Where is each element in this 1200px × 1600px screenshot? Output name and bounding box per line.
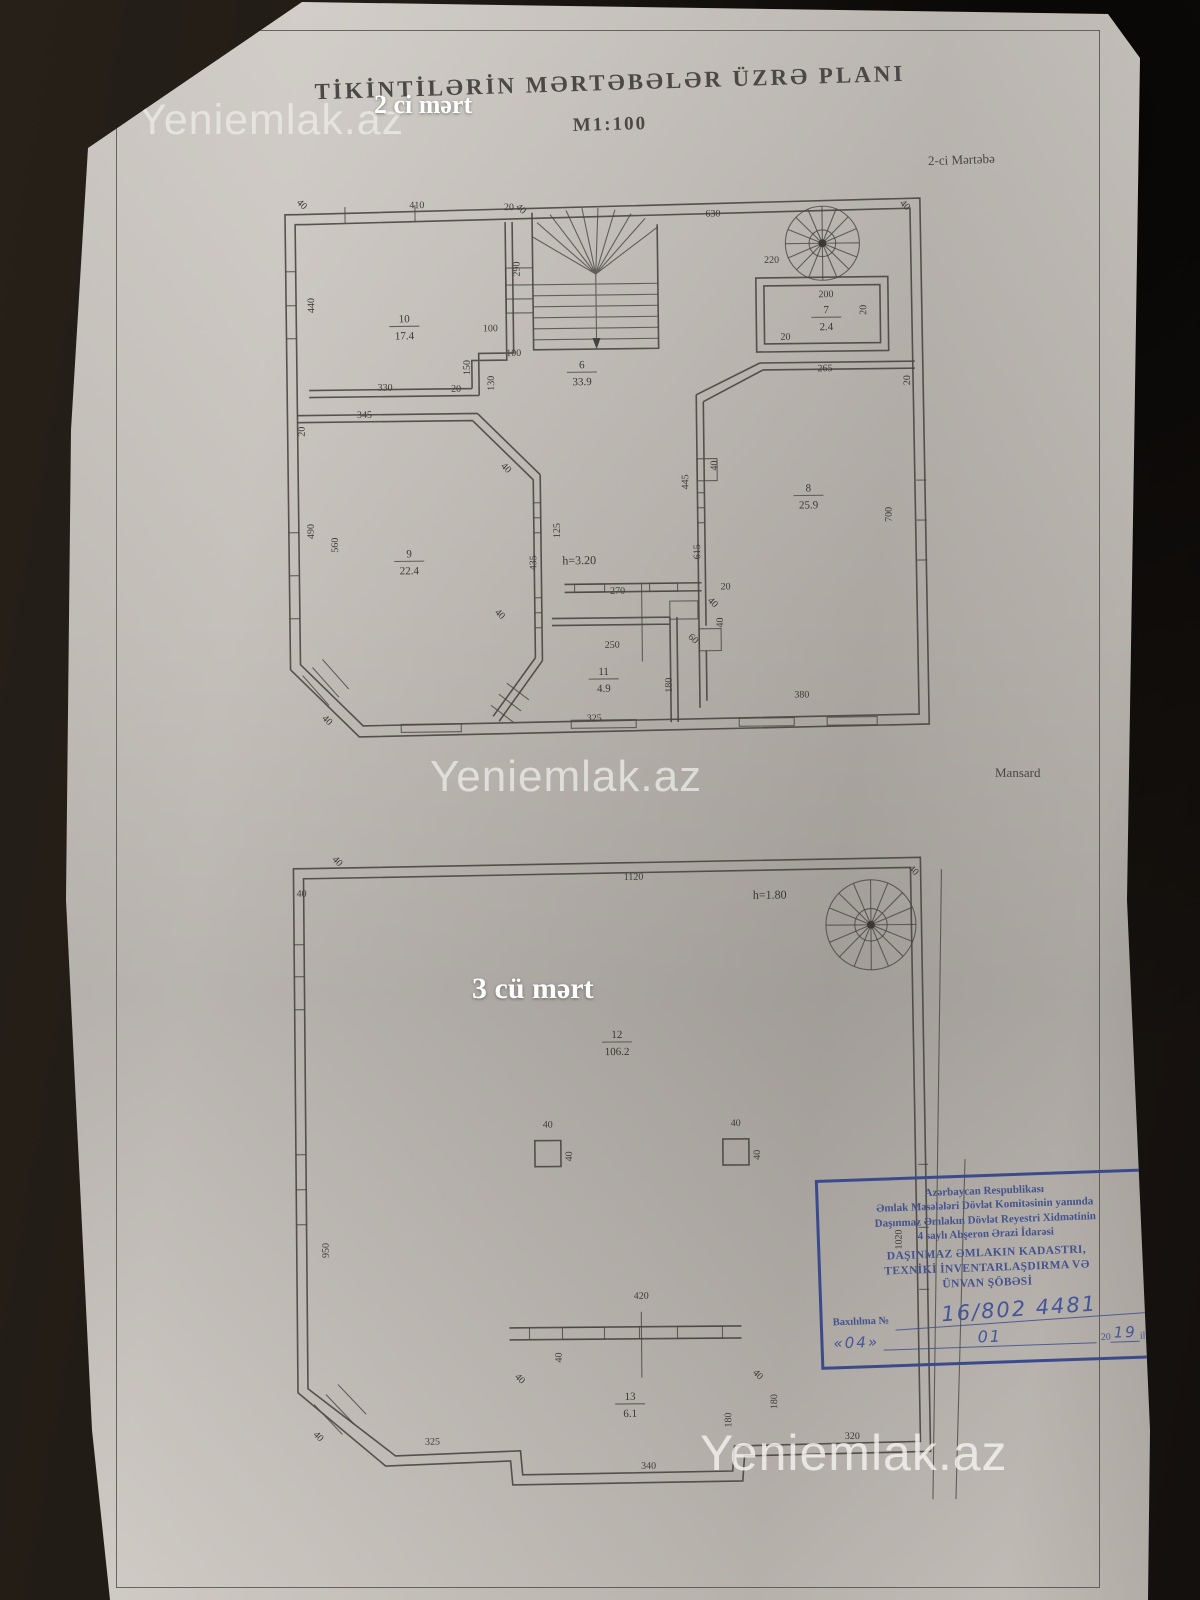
dimension-label: 560 [330,538,341,553]
stamp-year-suffix: il [1140,1331,1146,1342]
dimension-label: 40 [752,1150,763,1160]
room-number: 11 [598,666,609,678]
dimension-label: 420 [634,1291,649,1302]
dimension-label: 200 [818,289,833,300]
dimension-label: 40 [906,863,921,878]
floor3-overlay-label: 3 cü mərt [472,972,594,1006]
dimension-label: 40 [715,617,726,627]
dimension-label: 20 [720,581,730,592]
stamp-year-value: 19 [1110,1323,1140,1343]
dimension-label: 20 [451,384,461,395]
dimension-label: 40 [297,889,307,900]
dimension-label: 20 [780,332,790,343]
dimension-label: 380 [794,689,809,700]
room-area: 17.4 [395,330,415,342]
registry-stamp: Azərbaycan Respublikası Əmlak Məsələləri… [815,1168,1159,1370]
ceiling-height-note: h=1.80 [753,888,787,902]
dimension-label: 440 [306,298,317,313]
spiral-staircase [785,206,860,281]
dimension-label: 435 [528,555,539,570]
room-number: 7 [823,304,829,316]
dimension-label: 630 [705,208,720,219]
dimension-label: 40 [705,595,720,610]
floor2-overlay-label: 2 ci mərt [374,90,472,120]
room-area: 4.9 [597,683,611,695]
dimension-label: 40 [554,1352,565,1362]
floor-plan-2-drawing: 4102044063029022020020202652010010015013… [265,168,932,751]
dimension-label: 40 [330,854,345,869]
spiral-staircase [826,879,917,970]
dimension-label: 1120 [624,872,644,883]
stamp-number-label: Baxılılma № [833,1315,890,1328]
paper-sheet: TİKİNTİLƏRİN MƏRTƏBƏLƏR ÜZRƏ PLANI M1:10… [0,0,1200,1600]
dimension-label: 40 [512,1372,527,1387]
dimension-label: 220 [764,255,779,266]
dimension-label: 490 [306,524,317,539]
dimension-label: 20 [858,305,869,315]
watermark-top: Yeniemlak.az [138,96,404,145]
room-area: 33.9 [572,376,592,388]
floor3-caption: Mansard [995,765,1041,781]
stamp-year-prefix: 20 [1101,1332,1111,1343]
dimension-label: 345 [357,410,372,421]
room-number: 6 [579,359,585,371]
dimension-label: 40 [311,1429,326,1444]
room-number: 10 [399,313,411,325]
dimension-label: 700 [884,507,895,522]
dimension-label: 180 [664,678,675,693]
dimension-label: 615 [692,544,703,559]
dimension-label: 40 [543,1120,553,1131]
spiral-center [867,921,875,929]
room-number: 12 [611,1029,622,1041]
dimension-label: 325 [587,713,602,724]
watermark-bottom: Yeniemlak.az [700,1424,1008,1482]
dimension-label: 130 [486,376,497,391]
room-area: 25.9 [799,499,819,511]
ceiling-height-note: h=3.20 [562,553,596,567]
dimension-label: 950 [321,1243,332,1258]
dimension-label: 265 [817,363,832,374]
room-area: 2.4 [819,321,833,333]
dimension-label: 40 [498,461,513,476]
dimension-label: 40 [513,202,528,217]
dimension-label: 40 [294,197,309,212]
dimension-label: 330 [378,383,393,394]
floor-plan-3-drawing: 1120404040950102040404040420404040180180… [265,819,971,1505]
dimension-label: 270 [610,586,625,597]
room-number: 8 [806,482,812,494]
dimension-label: 150 [462,360,473,375]
room-area: 22.4 [400,565,420,577]
dimension-label: 40 [564,1151,575,1161]
dimension-label: 40 [750,1368,765,1383]
dimension-label: 180 [769,1394,780,1409]
room-area: 106.2 [605,1046,630,1058]
dimension-label: 40 [709,461,720,471]
room-area: 6.1 [623,1408,637,1420]
dimension-label: 40 [492,607,507,622]
dimension-label: 290 [512,261,523,276]
watermark-middle: Yeniemlak.az [430,752,702,802]
room-number: 9 [406,548,412,560]
dimension-label: 20 [902,375,913,385]
dimension-label: 40 [320,713,335,728]
dimension-label: 125 [552,523,563,538]
photo-background: TİKİNTİLƏRİN MƏRTƏBƏLƏR ÜZRƏ PLANI M1:10… [0,0,1200,1600]
dimension-label: 60 [686,632,701,647]
dimension-label: 250 [605,640,620,651]
dimension-label: 340 [641,1461,656,1472]
room-number: 13 [624,1391,636,1403]
dimension-label: 100 [506,348,521,359]
dimension-label: 325 [425,1437,440,1448]
floor2-caption: 2-ci Mərtəbə [928,151,995,169]
dimension-label: 445 [680,474,691,489]
dimension-label: 20 [504,202,514,213]
dimension-label: 100 [483,323,498,334]
dimension-label: 40 [731,1118,741,1129]
stamp-day: «04» [833,1333,879,1353]
dimension-label: 20 [297,427,308,437]
dimension-label: 410 [409,200,424,211]
